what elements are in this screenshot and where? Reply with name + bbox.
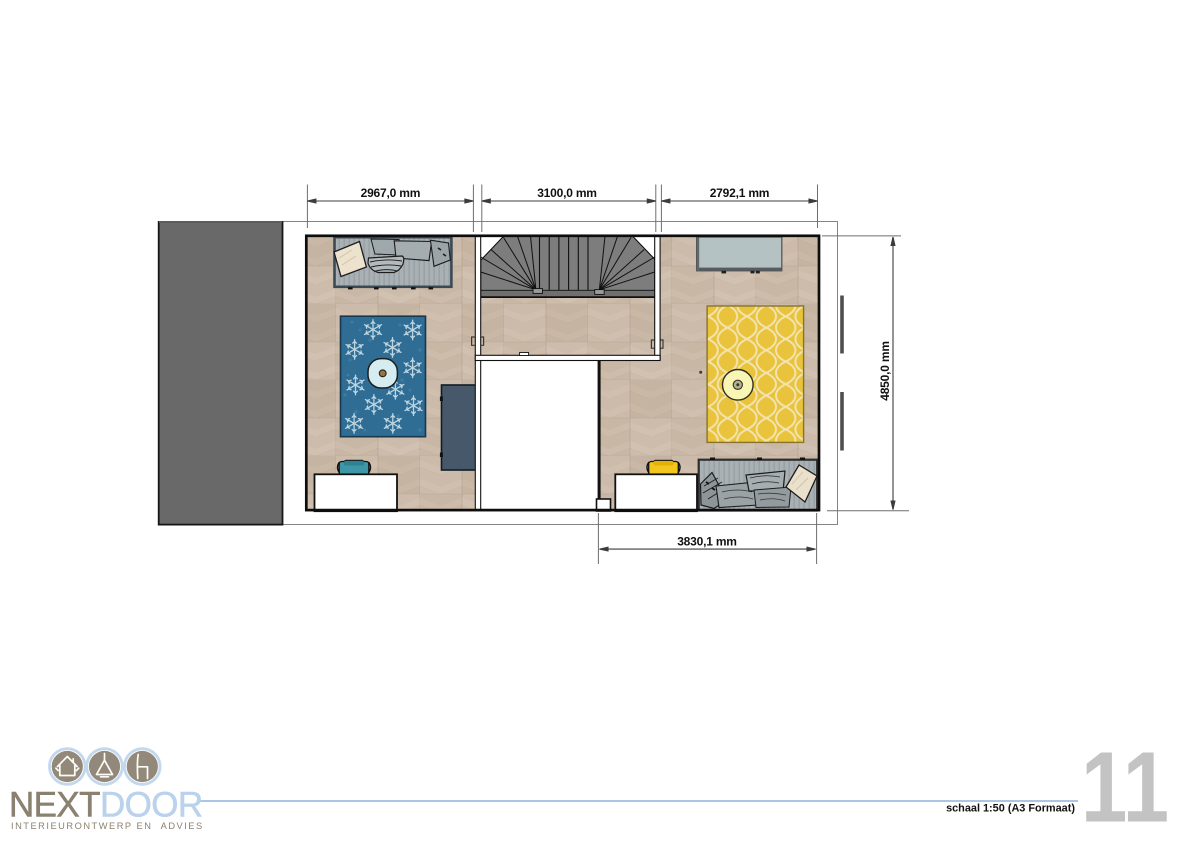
- svg-text:2792,1 mm: 2792,1 mm: [710, 186, 770, 200]
- svg-text:schaal 1:50 (A3 Formaat): schaal 1:50 (A3 Formaat): [946, 803, 1075, 815]
- svg-text:4850,0 mm: 4850,0 mm: [878, 341, 892, 401]
- svg-text:NEXTDOOR: NEXTDOOR: [9, 786, 203, 825]
- svg-text:3830,1 mm: 3830,1 mm: [677, 534, 737, 548]
- svg-text:2967,0 mm: 2967,0 mm: [361, 186, 421, 200]
- svg-text:11: 11: [1081, 732, 1169, 842]
- svg-text:3100,0 mm: 3100,0 mm: [537, 186, 597, 200]
- svg-text:INTERIEURONTWERP EN ADVIES: INTERIEURONTWERP EN ADVIES: [11, 821, 204, 831]
